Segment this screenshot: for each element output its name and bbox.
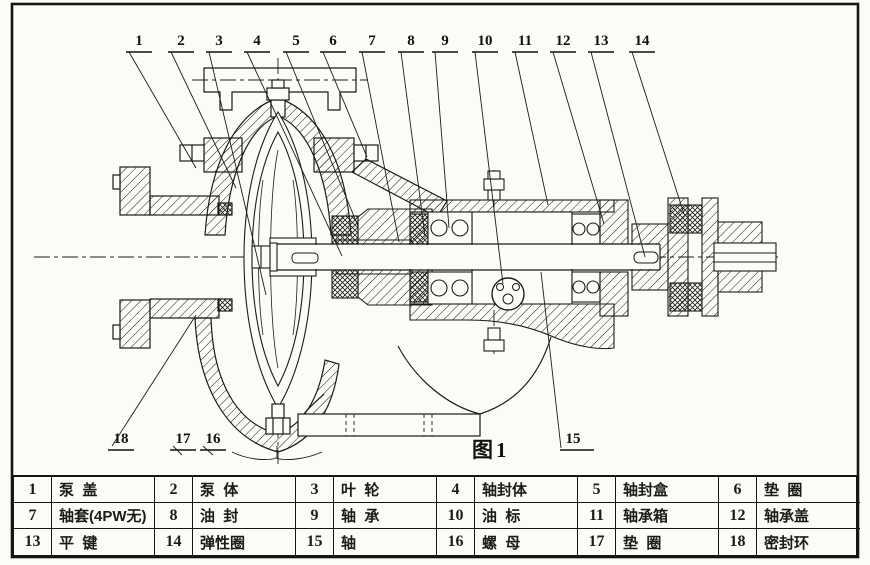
parts-table: 1 泵 盖 2 泵 体 3 叶 轮 4 轴封体 5 轴封盒 6 垫 圈 7 轴套… [12,475,858,557]
part-name: 平 键 [52,529,155,555]
callout-17: 17 [169,431,197,448]
part-name: 油 封 [193,503,296,529]
drawing-sheet: 1 2 3 4 5 6 7 8 9 10 11 12 13 14 18 17 1… [0,0,870,565]
impeller-nut [252,243,277,271]
callout-13: 13 [587,33,615,50]
output-shaft [714,243,776,271]
part-number: 6 [719,477,757,503]
callout-1: 1 [125,33,153,50]
part-number: 1 [14,477,52,503]
callout-16: 16 [199,431,227,448]
callout-12: 12 [549,33,577,50]
callout-14: 14 [628,33,656,50]
callout-18: 18 [107,431,135,448]
part-number: 14 [155,529,193,555]
bottom-nut [266,404,290,434]
part-name: 螺 母 [475,529,578,555]
part-number: 10 [437,503,475,529]
callout-15: 15 [559,431,587,448]
callout-8: 8 [397,33,425,50]
part-number: 4 [437,477,475,503]
part-number: 9 [296,503,334,529]
part-name: 轴封体 [475,477,578,503]
part-name: 轴承箱 [616,503,719,529]
pump-shaft [252,240,660,274]
oil-fill-plug [484,171,504,200]
part-name: 轴承盖 [757,503,860,529]
part-number: 8 [155,503,193,529]
callout-4: 4 [243,33,271,50]
sealing-ring [218,299,232,311]
oil-seal [410,214,428,244]
part-number: 13 [14,529,52,555]
part-number: 11 [578,503,616,529]
callout-6: 6 [319,33,347,50]
elastic-ring [670,205,702,233]
part-number: 17 [578,529,616,555]
part-name: 泵 盖 [52,477,155,503]
callout-7: 7 [358,33,386,50]
part-name: 叶 轮 [334,477,437,503]
part-name: 轴 [334,529,437,555]
part-number: 16 [437,529,475,555]
part-number: 5 [578,477,616,503]
part-number: 18 [719,529,757,555]
callout-11: 11 [511,33,539,50]
part-name: 泵 体 [193,477,296,503]
callout-10: 10 [471,33,499,50]
part-name: 轴封盒 [616,477,719,503]
oil-gauge [492,278,524,310]
oil-seal [410,272,428,302]
part-name: 密封环 [757,529,860,555]
part-number: 3 [296,477,334,503]
figure-label: 图1 [472,434,510,464]
part-name: 油 标 [475,503,578,529]
part-name: 垫 圈 [616,529,719,555]
callout-3: 3 [205,33,233,50]
part-number: 12 [719,503,757,529]
callout-2: 2 [167,33,195,50]
callout-5: 5 [282,33,310,50]
callout-9: 9 [431,33,459,50]
part-name: 轴套(4PW无) [52,503,155,529]
part-name: 垫 圈 [757,477,860,503]
part-name: 弹性圈 [193,529,296,555]
drain-plug [484,328,504,351]
part-number: 7 [14,503,52,529]
part-number: 15 [296,529,334,555]
part-number: 2 [155,477,193,503]
part-name: 轴 承 [334,503,437,529]
elastic-ring [670,283,702,311]
support-foot [266,337,551,436]
